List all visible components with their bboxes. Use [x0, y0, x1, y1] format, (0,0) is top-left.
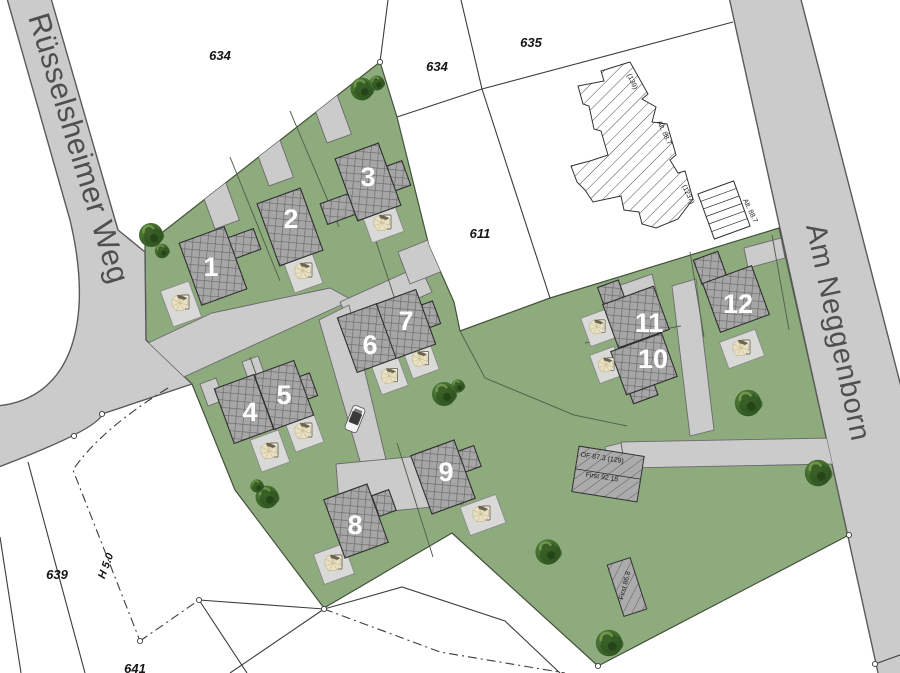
svg-text:4: 4 — [242, 397, 257, 427]
svg-text:11: 11 — [635, 308, 664, 338]
svg-text:6: 6 — [362, 330, 377, 360]
svg-text:641: 641 — [124, 661, 146, 673]
svg-text:12: 12 — [723, 289, 753, 319]
svg-text:639: 639 — [46, 567, 68, 582]
svg-text:8: 8 — [347, 510, 362, 540]
svg-text:1: 1 — [203, 252, 218, 282]
svg-text:10: 10 — [638, 344, 668, 374]
svg-text:5: 5 — [276, 380, 291, 410]
svg-text:634: 634 — [426, 59, 448, 74]
svg-text:9: 9 — [438, 457, 453, 487]
svg-text:2: 2 — [283, 204, 298, 234]
svg-text:3: 3 — [360, 162, 375, 192]
svg-text:611: 611 — [470, 226, 491, 241]
svg-text:635: 635 — [520, 35, 542, 50]
svg-text:7: 7 — [398, 306, 413, 336]
svg-text:634: 634 — [209, 48, 231, 63]
